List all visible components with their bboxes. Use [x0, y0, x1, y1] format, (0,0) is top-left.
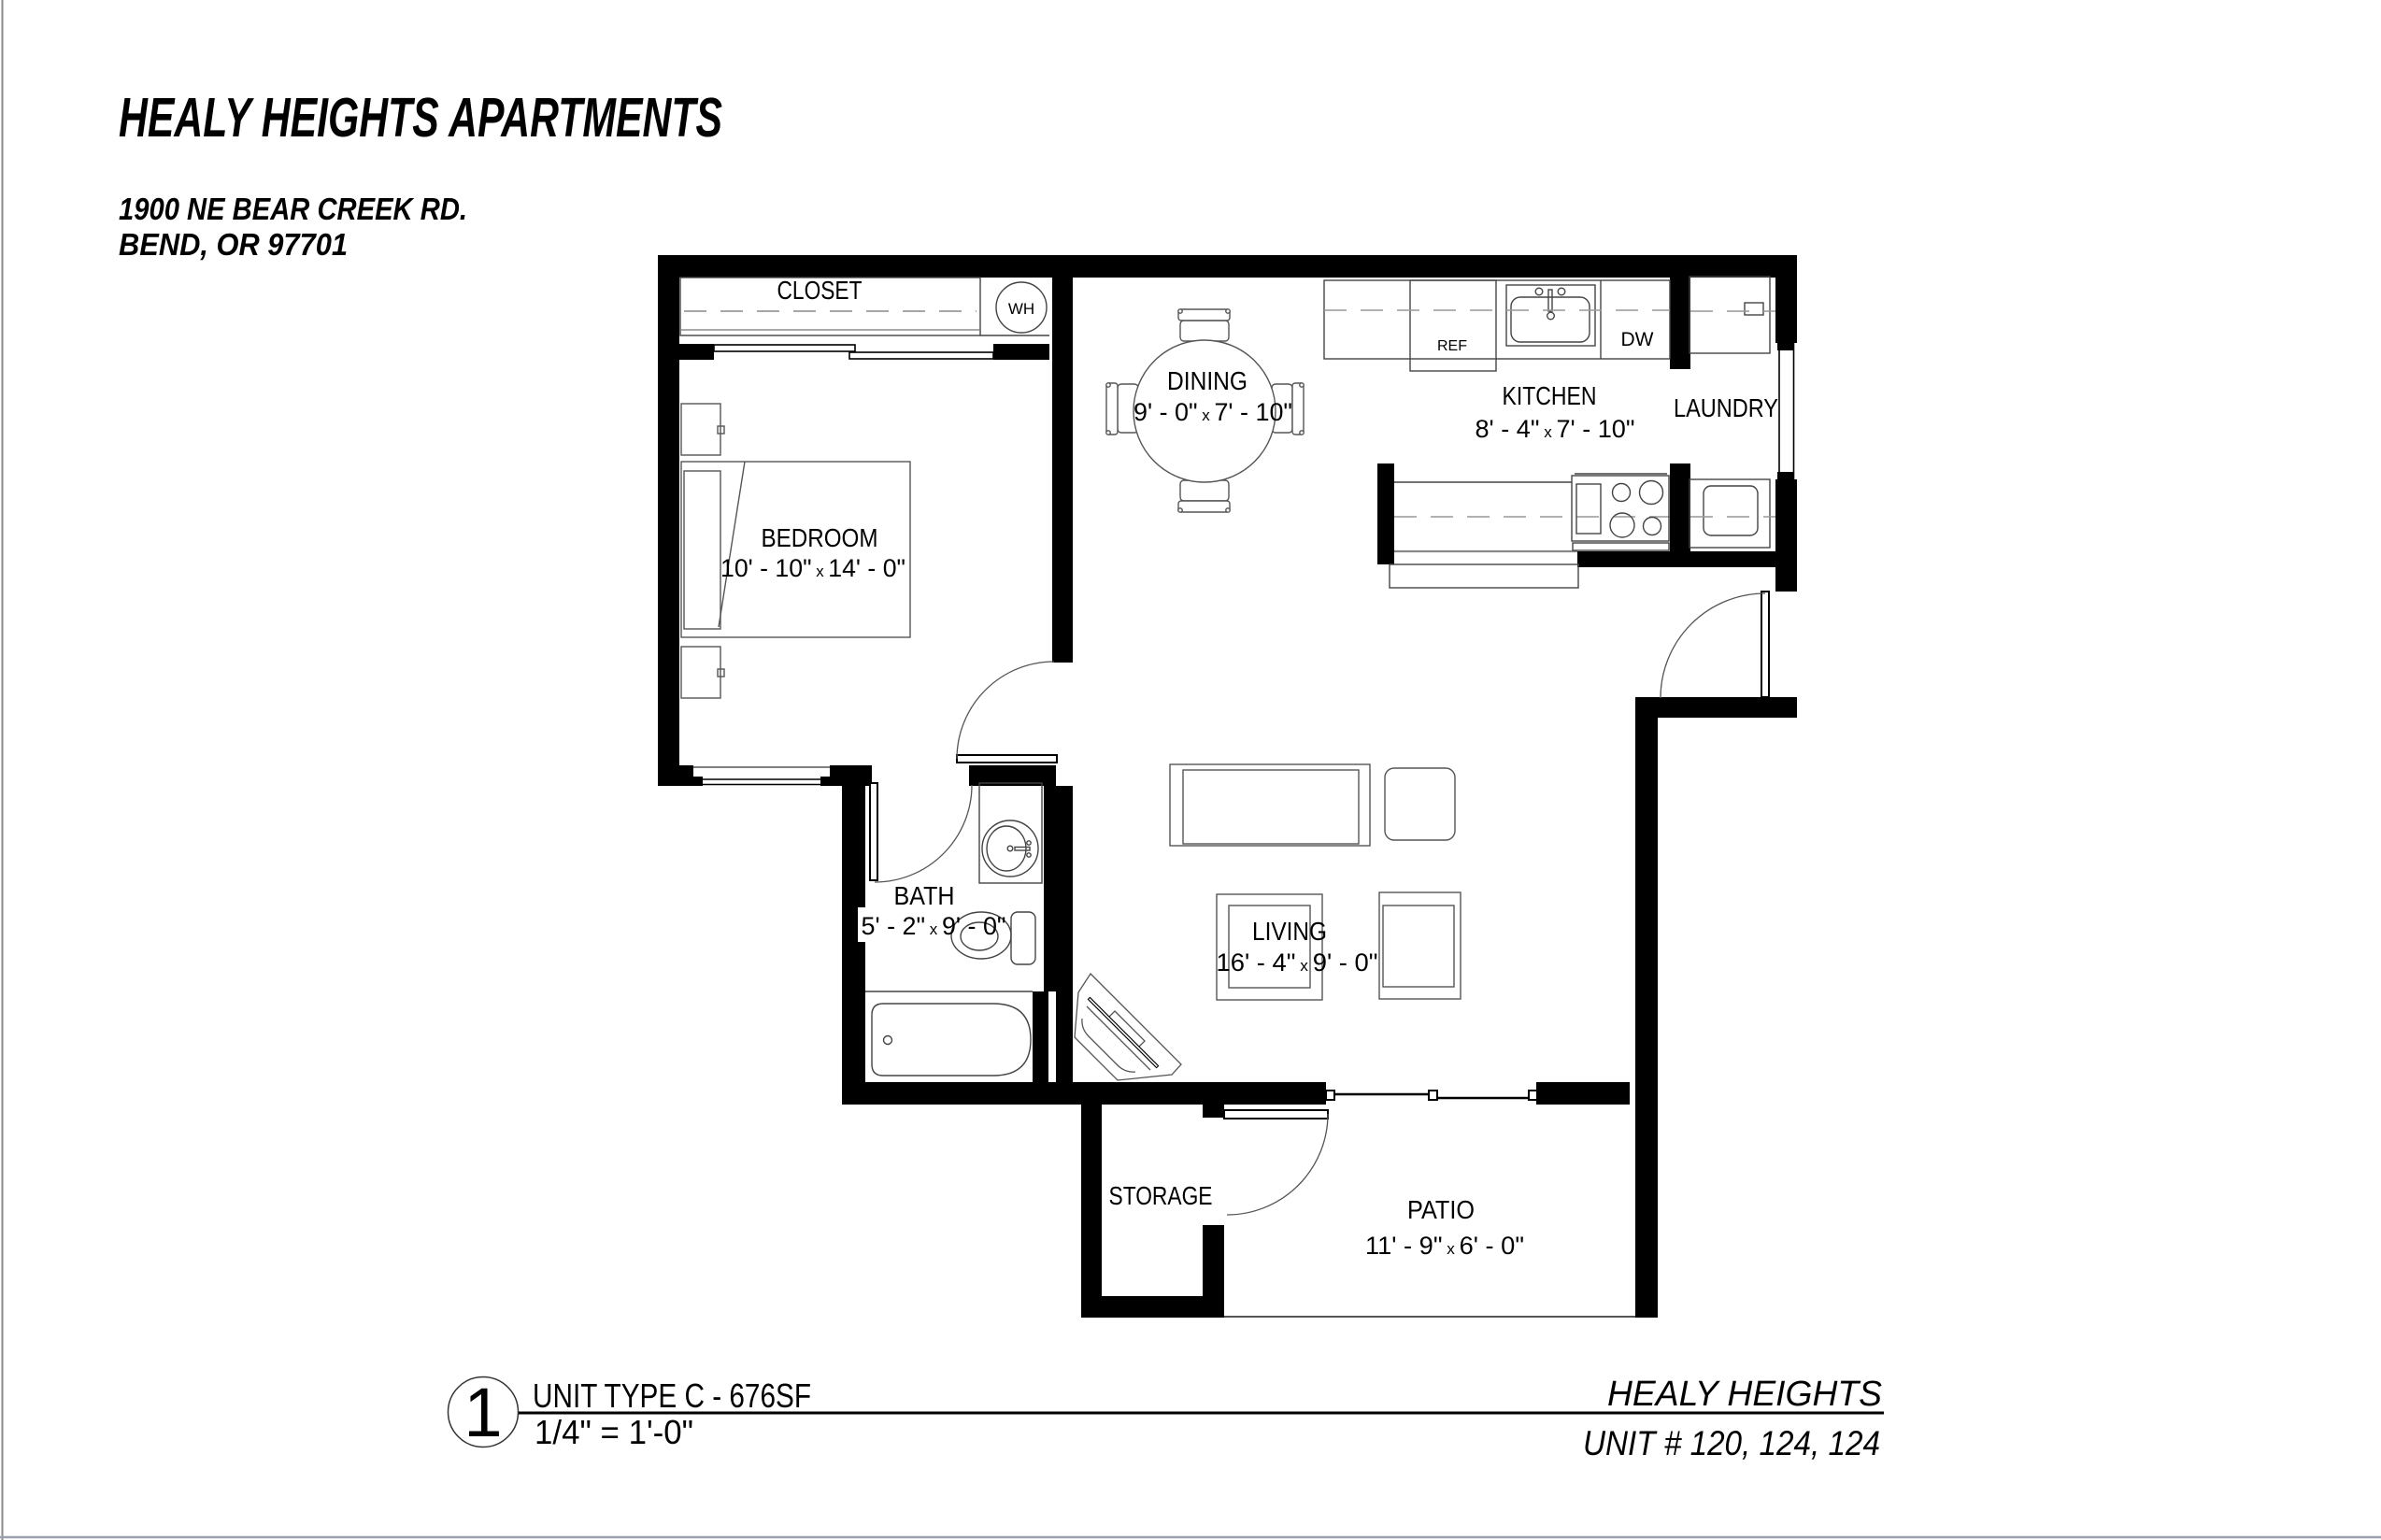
svg-text:1/4" = 1'-0": 1/4" = 1'-0" — [535, 1413, 693, 1451]
svg-text:BEDROOM: BEDROOM — [762, 523, 878, 552]
svg-text:UNIT # 120, 124, 124: UNIT # 120, 124, 124 — [1583, 1424, 1880, 1462]
svg-text:HEALY HEIGHTS: HEALY HEIGHTS — [1607, 1375, 1882, 1414]
svg-text:CLOSET: CLOSET — [777, 276, 863, 305]
svg-text:DW: DW — [1621, 329, 1654, 350]
svg-text:WH: WH — [1008, 300, 1034, 318]
svg-text:BATH: BATH — [894, 881, 955, 910]
svg-text:BEND, OR 97701: BEND, OR 97701 — [119, 227, 348, 262]
svg-text:LAUNDRY: LAUNDRY — [1674, 393, 1778, 422]
svg-text:LIVING: LIVING — [1252, 917, 1327, 946]
svg-text:DINING: DINING — [1167, 366, 1248, 395]
svg-text:REF: REF — [1437, 338, 1467, 354]
svg-text:HEALY HEIGHTS APARTMENTS: HEALY HEIGHTS APARTMENTS — [119, 87, 722, 149]
svg-text:1900 NE BEAR CREEK RD.: 1900 NE BEAR CREEK RD. — [119, 192, 467, 226]
svg-text:1: 1 — [463, 1374, 502, 1451]
svg-text:UNIT TYPE C - 676SF: UNIT TYPE C - 676SF — [533, 1376, 811, 1415]
svg-text:PATIO: PATIO — [1407, 1195, 1475, 1224]
svg-text:KITCHEN: KITCHEN — [1503, 381, 1597, 410]
svg-text:STORAGE: STORAGE — [1109, 1181, 1213, 1210]
